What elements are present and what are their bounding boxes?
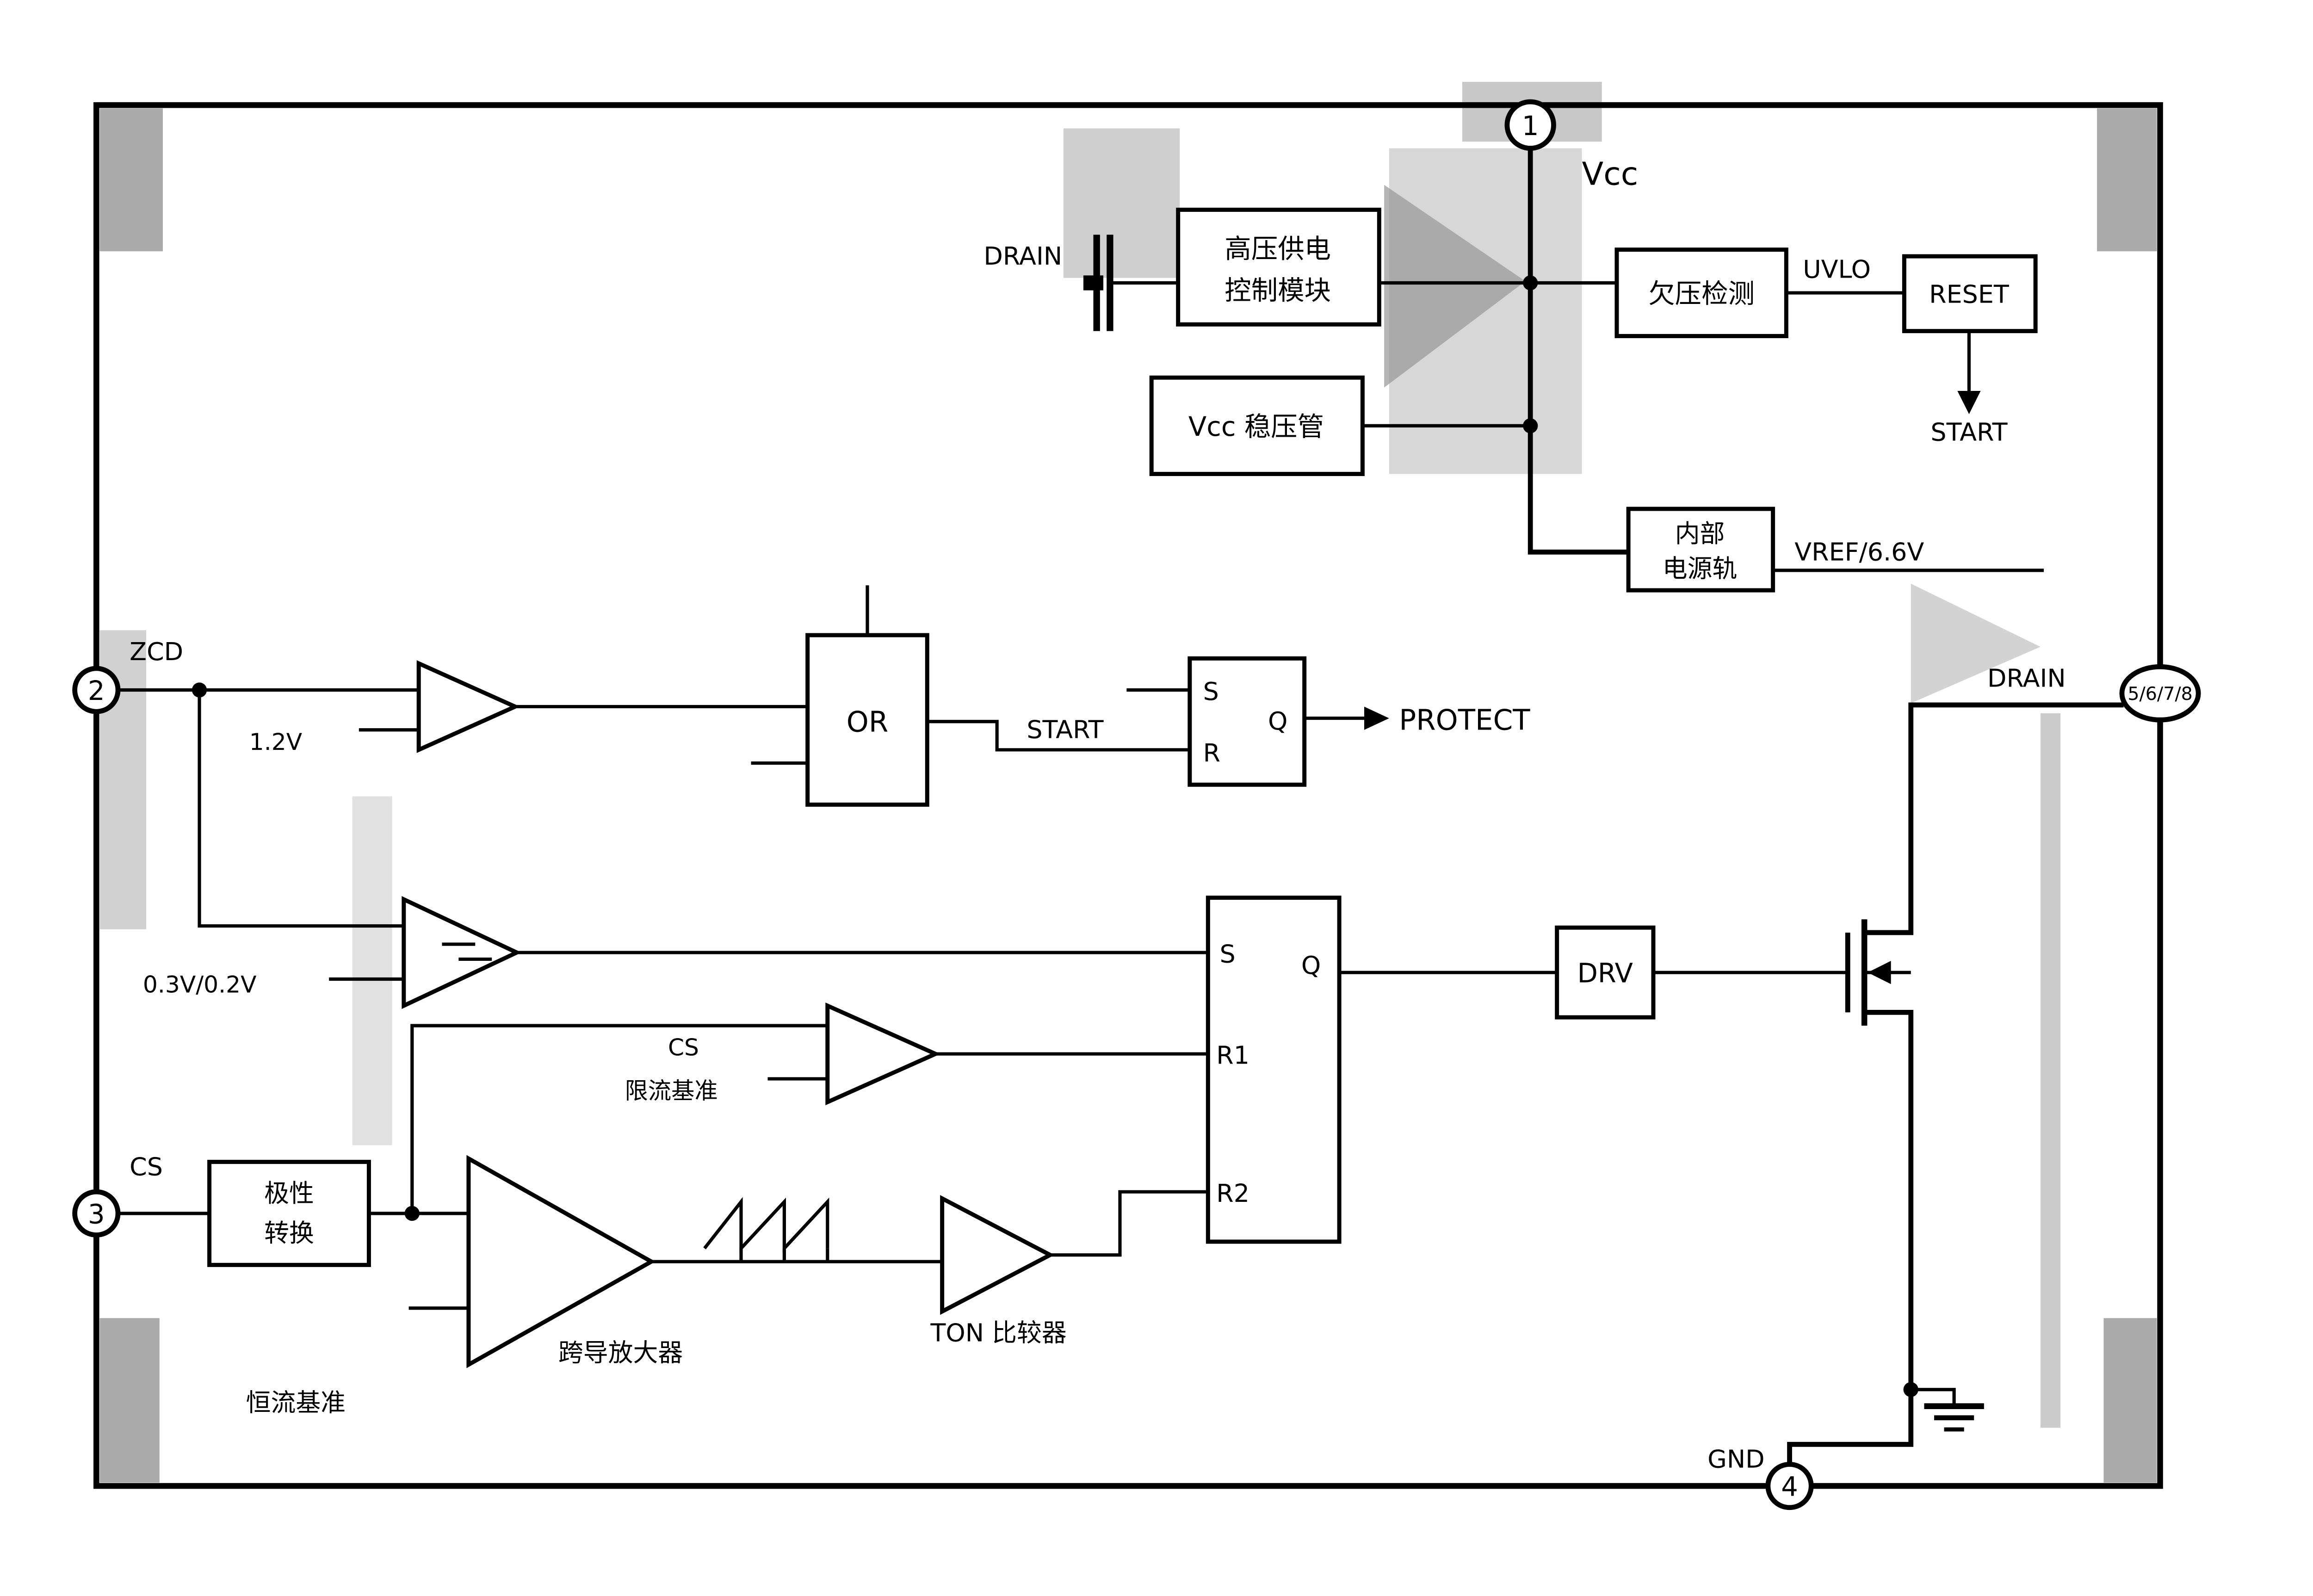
comparator-hysteresis (404, 899, 517, 1006)
artifact-mid-left (352, 796, 392, 1145)
ota-label: 跨导放大器 (558, 1338, 683, 1367)
junction-vcc-reg (1523, 418, 1538, 433)
ref-0302-label: 0.3V/0.2V (143, 971, 257, 998)
drain-right-label: DRAIN (1987, 663, 2066, 693)
wires (118, 148, 2123, 1465)
pin-5678-number: 5/6/7/8 (2127, 683, 2192, 705)
start-mid-label: START (1027, 715, 1104, 744)
vcc-regulator-label: Vcc 稳压管 (1188, 411, 1324, 442)
protect-latch-r: R (1203, 738, 1220, 767)
ground-icon (1924, 1406, 1984, 1429)
junction-cs (405, 1206, 420, 1221)
or-gate-label: OR (847, 705, 888, 738)
diagram-stage: 高压供电 控制模块 Vcc 稳压管 欠压检测 RESET 内部 电源轨 极性 转… (0, 0, 2313, 1596)
vref-label: VREF/6.6V (1794, 537, 1924, 566)
cs-pin-label: CS (130, 1152, 163, 1181)
start-top-label: START (1930, 418, 2008, 447)
ilim-ref-label: 限流基准 (625, 1077, 718, 1104)
wire-drain-line (1864, 705, 2123, 933)
pin-2-number: 2 (88, 675, 105, 706)
hv-supply-label-1: 高压供电 (1225, 234, 1331, 265)
mosfet-body-arrowhead (1868, 961, 1891, 984)
artifact-column-right (2041, 713, 2060, 1428)
artifact-corner-br (2103, 1318, 2157, 1483)
cs-sense-label: CS (668, 1034, 699, 1061)
junction-zcd (192, 682, 207, 697)
power-mosfet (1848, 919, 1864, 1026)
internal-rail-label-2: 电源轨 (1663, 554, 1738, 583)
protect-latch-s: S (1203, 677, 1219, 706)
sawtooth-waveform-icon (705, 1202, 828, 1262)
block-polarity (210, 1162, 369, 1265)
vcc-label: Vcc (1582, 156, 1639, 193)
main-latch-q: Q (1301, 951, 1321, 980)
pin-3-number: 3 (88, 1199, 105, 1230)
sawtooth-ticks (741, 1248, 828, 1262)
zcd-label: ZCD (130, 637, 183, 666)
main-latch-r1: R1 (1216, 1041, 1249, 1070)
comparator-cs-limit (828, 1006, 935, 1102)
junction-vcc-uv (1523, 275, 1538, 290)
chip-boundary (96, 105, 2160, 1486)
wire-source-gnd (1790, 1012, 1911, 1464)
comparator-ton (942, 1199, 1050, 1311)
artifact-corner-tl (100, 108, 163, 251)
drv-label: DRV (1577, 958, 1633, 989)
circuit-diagram: 高压供电 控制模块 Vcc 稳压管 欠压检测 RESET 内部 电源轨 极性 转… (0, 0, 2313, 1596)
pin-1-number: 1 (1522, 111, 1539, 142)
main-latch-r2: R2 (1216, 1179, 1249, 1208)
block-hv-supply (1178, 210, 1379, 324)
cc-ref-label: 恒流基准 (246, 1388, 346, 1417)
protect-label: PROTECT (1399, 704, 1530, 737)
artifact-top-left (1064, 128, 1180, 278)
uv-detect-label: 欠压检测 (1648, 278, 1755, 309)
artifact-corner-tr (2097, 108, 2157, 251)
ref-1v2-label: 1.2V (249, 728, 302, 755)
artifact-corner-bl (100, 1318, 160, 1483)
arrowheads (1364, 391, 1981, 984)
polarity-label-1: 极性 (264, 1179, 314, 1208)
comparator-zcd (419, 663, 515, 750)
polarity-label-2: 转换 (264, 1219, 314, 1248)
reset-label: RESET (1929, 280, 2010, 309)
uvlo-label: UVLO (1803, 255, 1871, 284)
junction-dots (192, 275, 1918, 1397)
main-latch-s: S (1219, 940, 1235, 969)
wire-ton-to-r2 (1050, 1192, 1208, 1255)
start-arrowhead (1957, 391, 1980, 414)
ton-label: TON 比较器 (930, 1318, 1066, 1348)
drain-top-label: DRAIN (983, 241, 1062, 271)
protect-latch-q: Q (1268, 707, 1287, 736)
transconductance-amp (469, 1158, 651, 1364)
protect-arrowhead (1364, 706, 1389, 730)
hv-supply-label-2: 控制模块 (1225, 275, 1331, 306)
gnd-label: GND (1707, 1445, 1765, 1474)
sawtooth-teeth (705, 1202, 828, 1249)
junction-gnd (1904, 1382, 1918, 1397)
internal-rail-label-1: 内部 (1675, 519, 1725, 548)
pin-4-number: 4 (1781, 1472, 1798, 1503)
